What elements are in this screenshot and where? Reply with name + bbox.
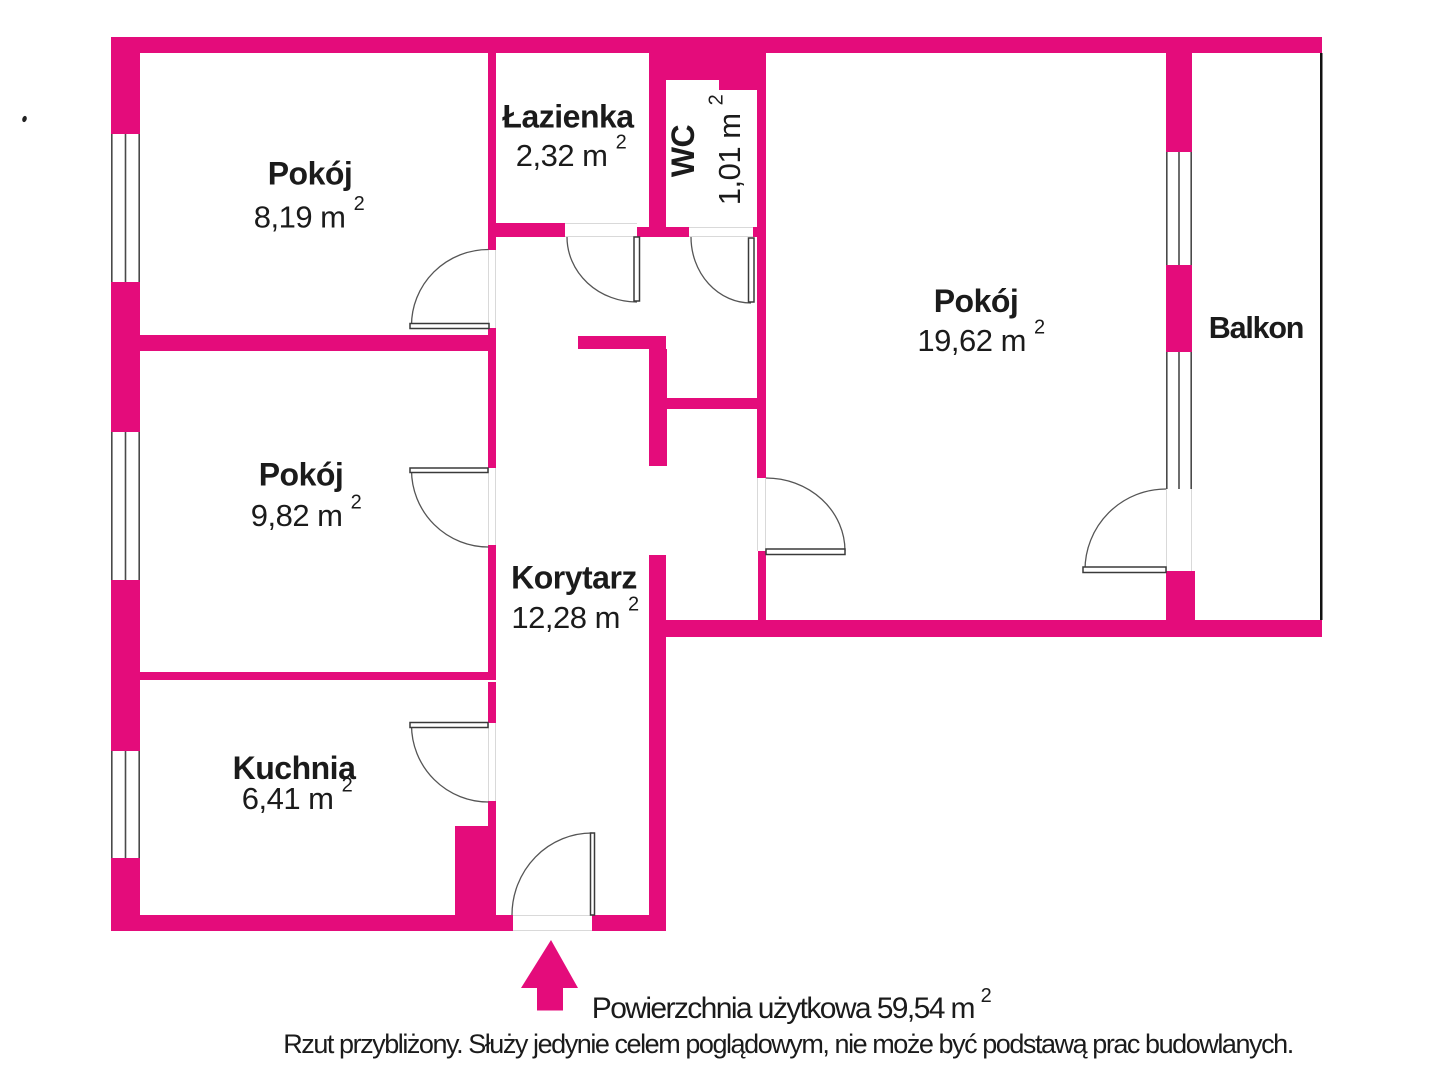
svg-text:Pokój: Pokój	[934, 283, 1019, 319]
svg-text:6,41 m 2: 6,41 m 2	[242, 775, 353, 817]
svg-text:19,62 m 2: 19,62 m 2	[917, 317, 1045, 359]
svg-text:Korytarz: Korytarz	[511, 560, 637, 596]
svg-text:8,19 m 2: 8,19 m 2	[254, 193, 365, 235]
svg-text:Łazienka: Łazienka	[502, 99, 634, 135]
svg-text:WC: WC	[665, 124, 701, 177]
svg-text:1,01 m 2: 1,01 m 2	[706, 94, 748, 205]
svg-text:Pokój: Pokój	[259, 457, 344, 493]
svg-text:9,82 m 2: 9,82 m 2	[251, 492, 362, 534]
svg-text:12,28 m 2: 12,28 m 2	[511, 594, 639, 636]
svg-text:Pokój: Pokój	[268, 156, 353, 192]
svg-text:2,32 m 2: 2,32 m 2	[516, 132, 627, 174]
svg-text:Rzut przybliżony. Służy jedyni: Rzut przybliżony. Służy jedynie celem po…	[283, 1029, 1293, 1059]
svg-text:Balkon: Balkon	[1209, 311, 1304, 345]
